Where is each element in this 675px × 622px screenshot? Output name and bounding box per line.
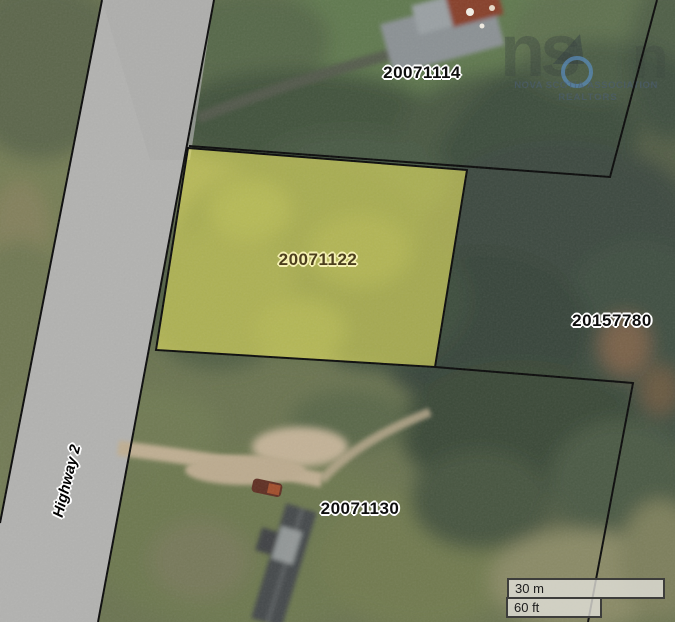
parcel-label-20157780: 20157780: [572, 311, 652, 331]
parcel-label-20071122: 20071122: [279, 250, 358, 270]
parcel-label-20071114: 20071114: [383, 63, 461, 83]
scalebar-metric: 30 m: [507, 578, 665, 599]
parcel-label-20071130: 20071130: [321, 499, 400, 519]
map-viewport[interactable]: ns n NOVA SCOTIA ASSOCIATION REALTORS 20…: [0, 0, 675, 622]
scalebar-imperial: 60 ft: [506, 597, 602, 618]
